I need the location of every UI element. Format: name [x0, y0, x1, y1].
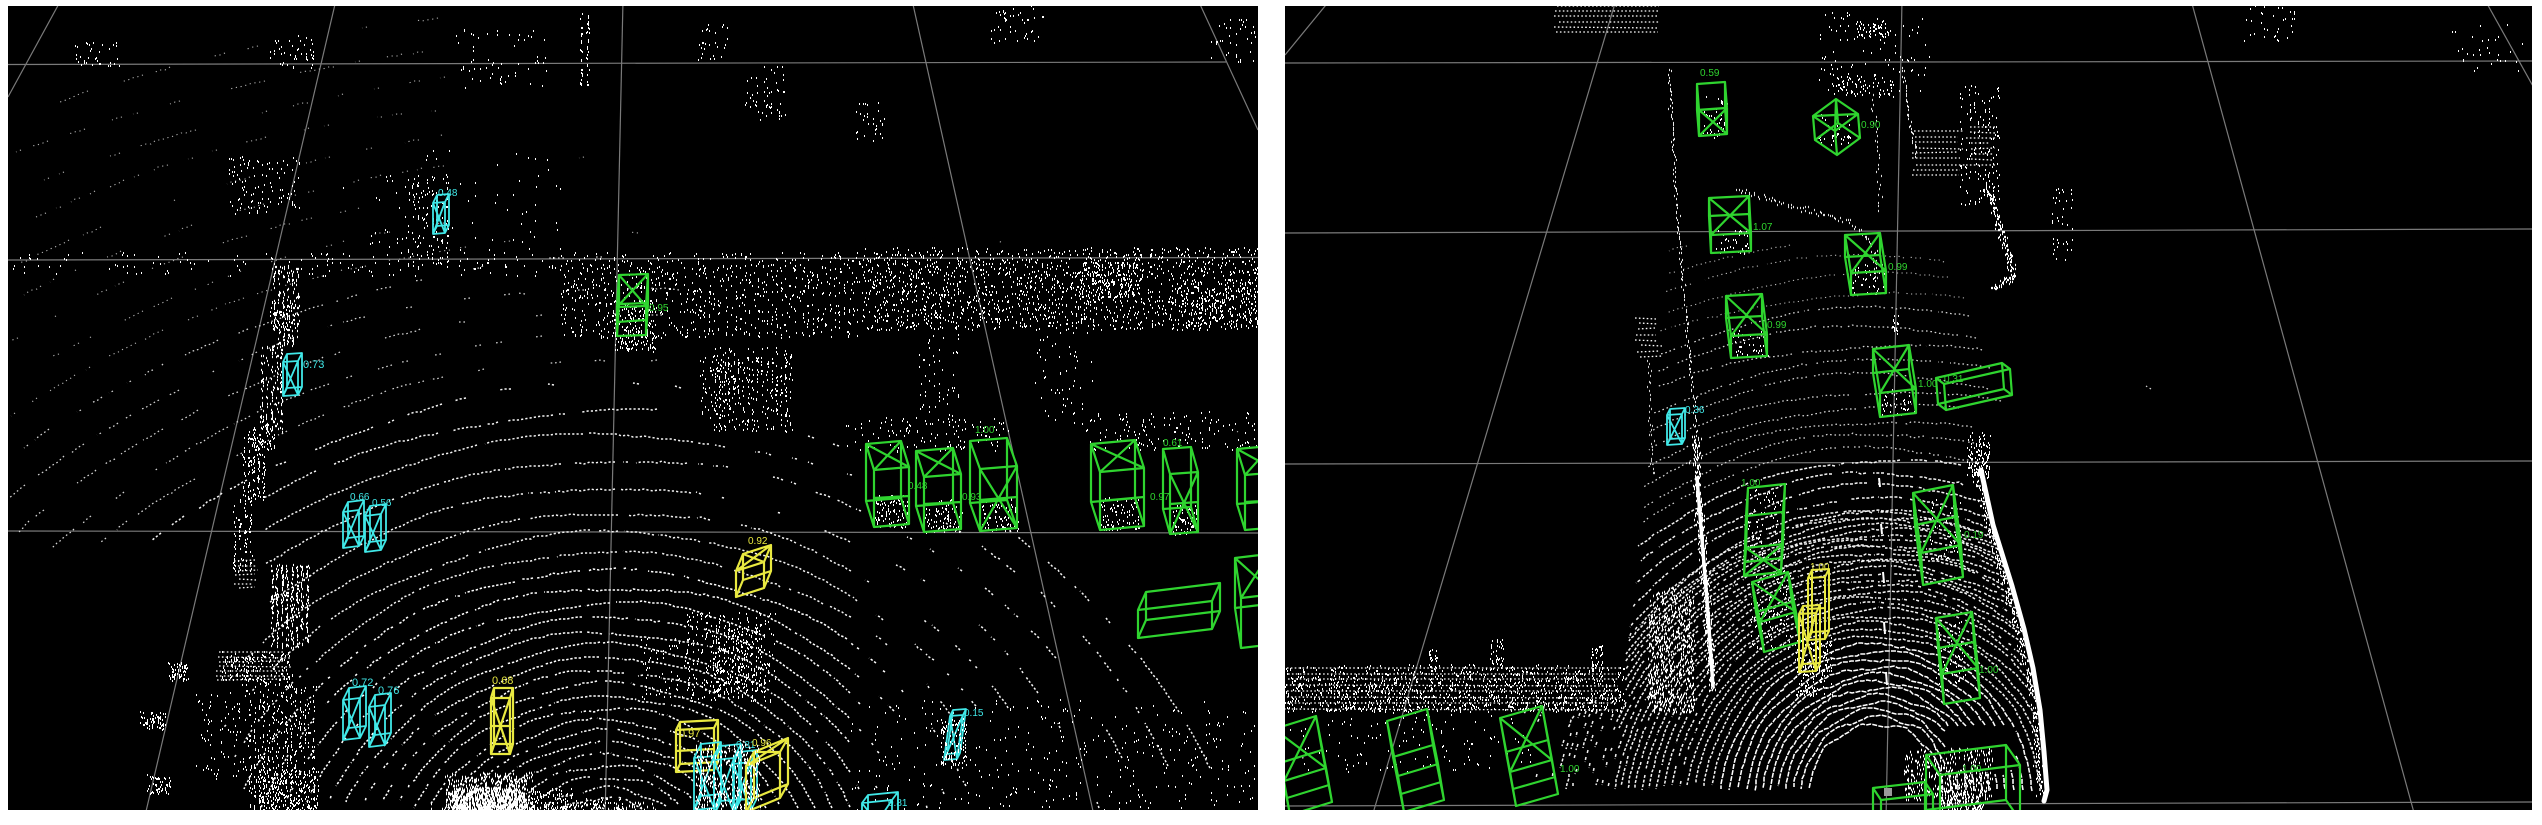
svg-text:0.99: 0.99: [1767, 320, 1787, 331]
svg-text:0.36: 0.36: [1685, 405, 1705, 416]
svg-text:0.76: 0.76: [378, 685, 399, 697]
svg-text:0.48: 0.48: [438, 188, 458, 199]
svg-text:0.61: 0.61: [1163, 438, 1183, 449]
svg-text:1.00: 1.00: [1962, 764, 1982, 775]
svg-text:0.31: 0.31: [1944, 374, 1964, 385]
svg-text:0.72: 0.72: [352, 677, 373, 689]
svg-text:0.66: 0.66: [350, 492, 370, 503]
svg-text:0.81: 0.81: [888, 798, 908, 809]
svg-text:0.90: 0.90: [1861, 120, 1881, 131]
svg-text:1.00: 1.00: [1918, 379, 1938, 390]
svg-text:0.56: 0.56: [372, 498, 392, 509]
svg-text:0.99: 0.99: [1888, 262, 1908, 273]
svg-text:1.00: 1.00: [1810, 562, 1830, 573]
svg-text:0.59: 0.59: [1700, 68, 1720, 79]
svg-text:0.96: 0.96: [752, 738, 772, 749]
svg-text:1.07: 1.07: [1753, 222, 1773, 233]
svg-text:0.73: 0.73: [303, 359, 324, 371]
svg-text:0.92: 0.92: [748, 536, 768, 547]
svg-text:0.97: 0.97: [679, 728, 700, 740]
svg-text:1.00: 1.00: [1741, 478, 1761, 489]
svg-text:0.95: 0.95: [649, 303, 669, 314]
svg-text:1.00: 1.00: [975, 425, 995, 436]
svg-text:1.00: 1.00: [1979, 665, 1999, 676]
svg-text:0.97: 0.97: [1150, 492, 1170, 503]
svg-text:0.19: 0.19: [1964, 530, 1984, 541]
svg-text:1.00: 1.00: [1560, 764, 1580, 775]
svg-text:0.68: 0.68: [492, 675, 513, 687]
svg-text:0.15: 0.15: [964, 708, 984, 719]
